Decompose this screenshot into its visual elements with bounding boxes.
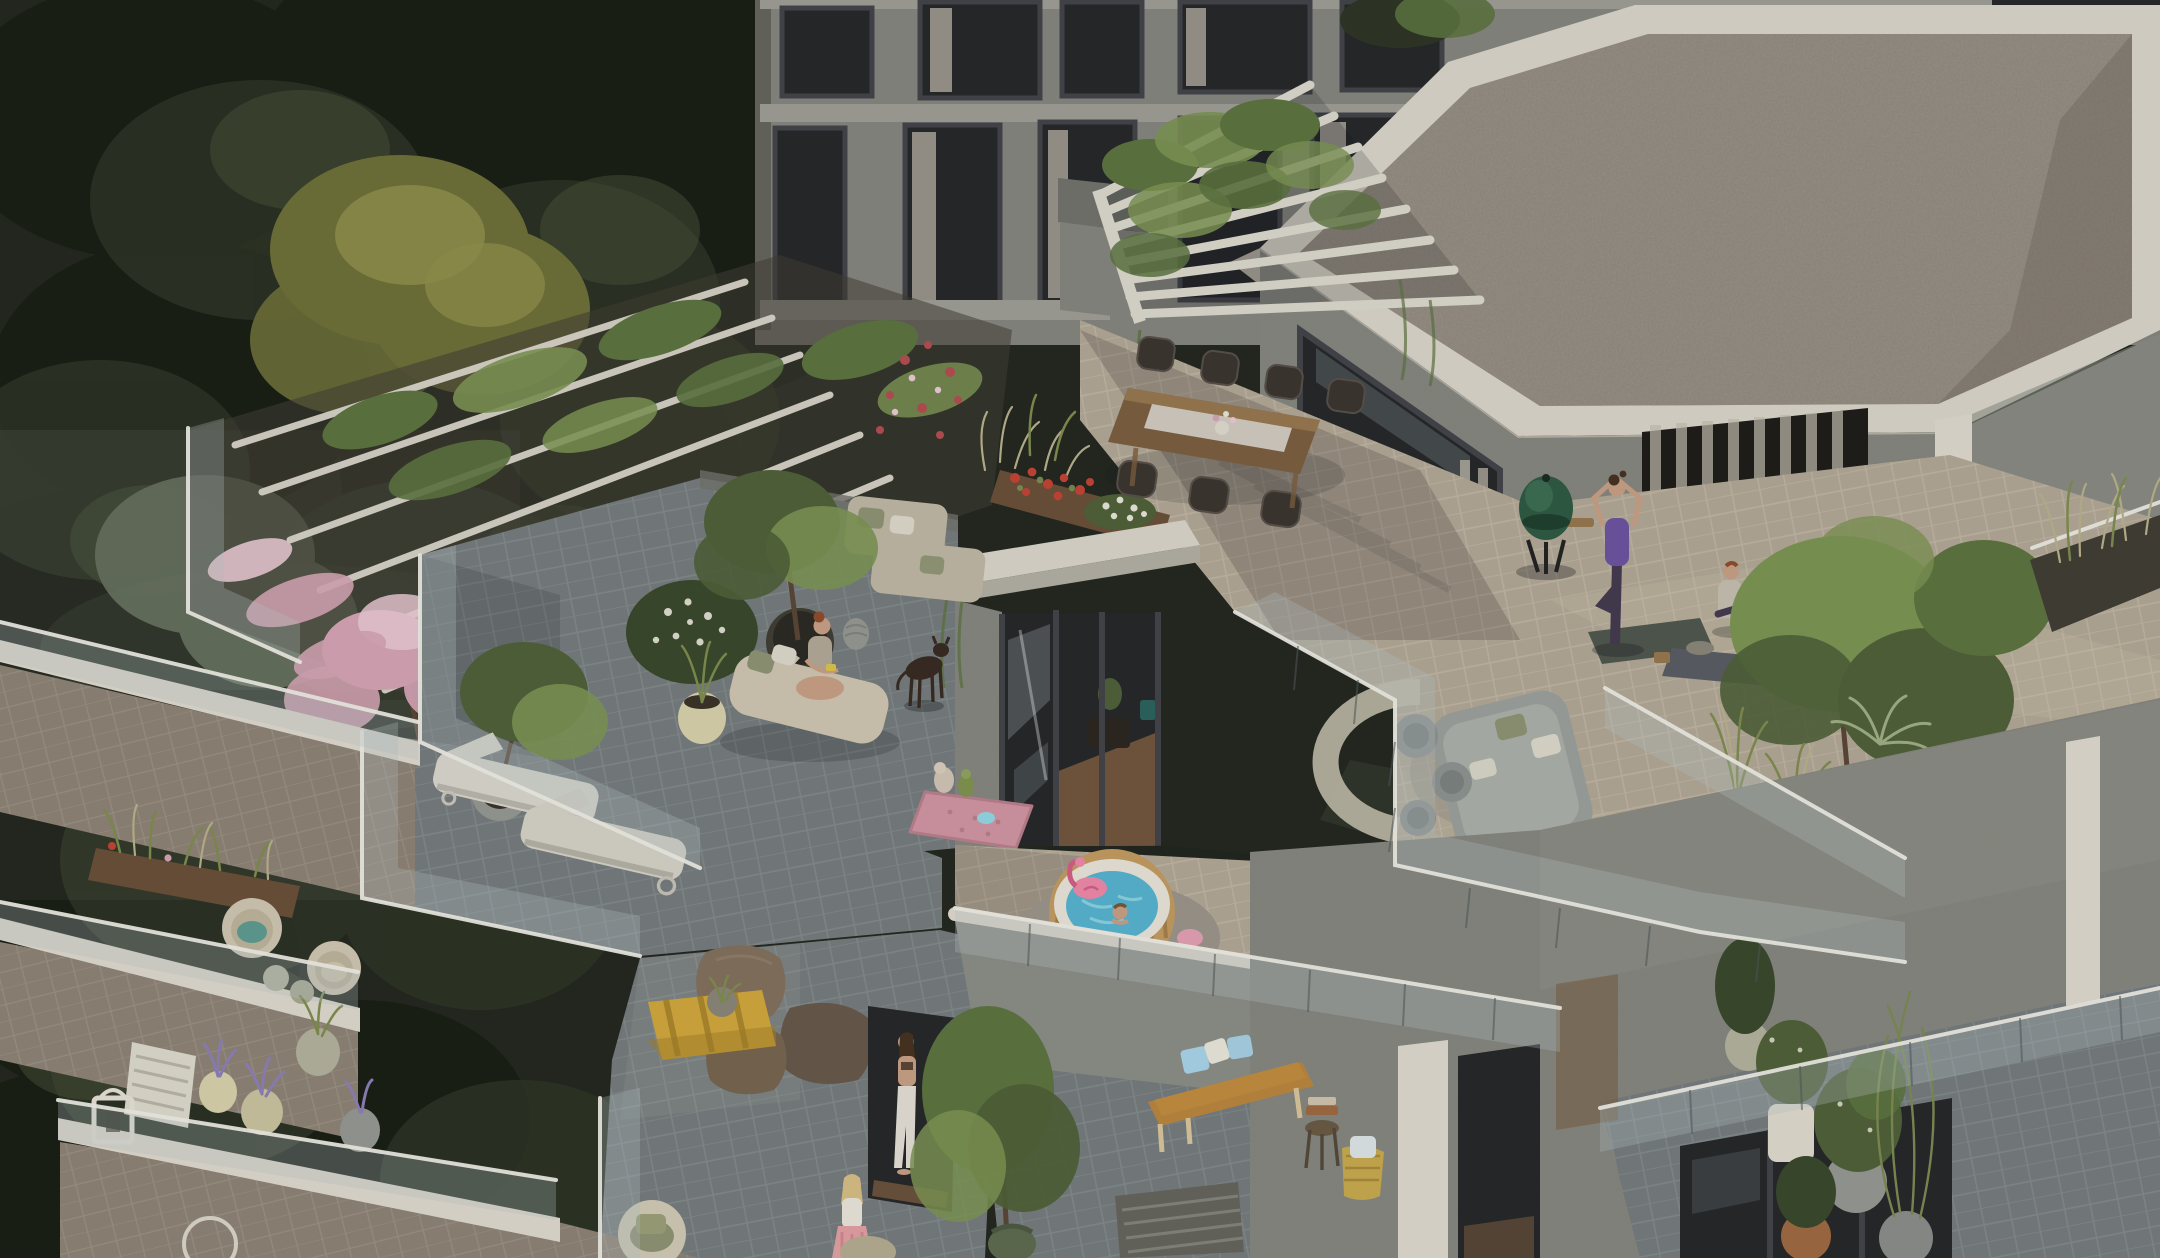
rendering-canvas xyxy=(0,0,2160,1258)
scene-rendering xyxy=(0,0,2160,1258)
dusk-overlay xyxy=(0,0,2160,1258)
